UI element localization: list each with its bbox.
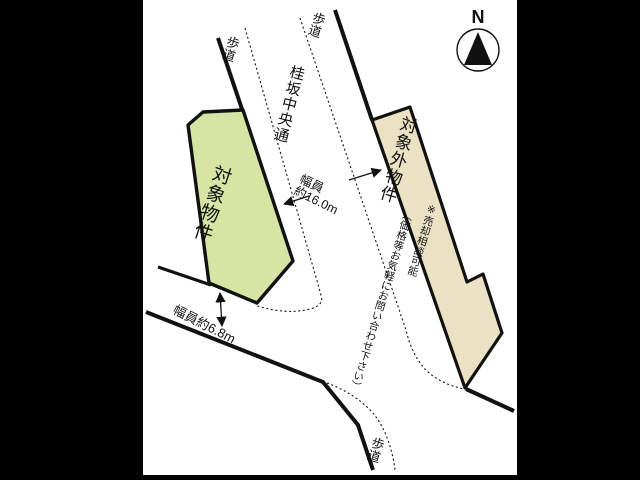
road-edge-southeast xyxy=(466,389,514,411)
compass-north-label: N xyxy=(467,8,489,27)
compass-needle-icon xyxy=(464,32,492,65)
site-map: N 歩道 歩道 桂坂中央通 対象物件 対象外物件 ※売却相談可能 （価格等お気軽… xyxy=(143,0,517,475)
side-road-south-edge xyxy=(146,312,373,470)
road-edge-east xyxy=(335,10,372,120)
screenshot: N 歩道 歩道 桂坂中央通 対象物件 対象外物件 ※売却相談可能 （価格等お気軽… xyxy=(0,0,640,480)
width-arrow-side xyxy=(220,293,222,326)
side-road-north-edge xyxy=(158,267,211,285)
sidewalk-dotted-bottom xyxy=(327,383,395,470)
